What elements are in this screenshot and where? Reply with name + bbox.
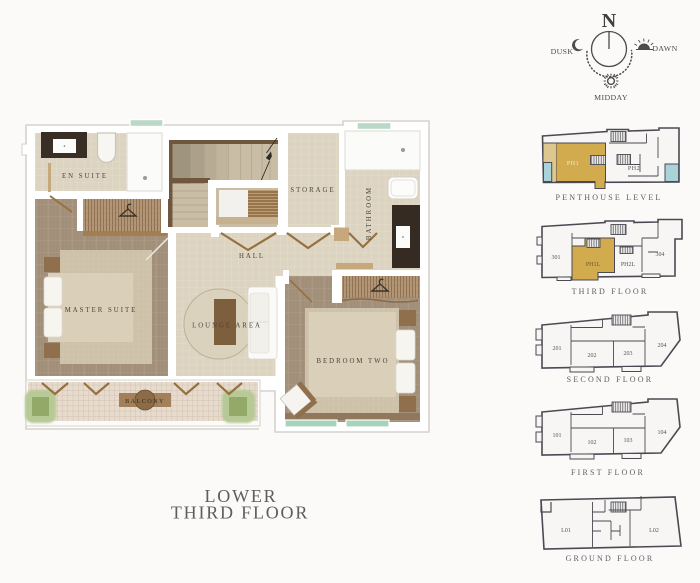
svg-text:L02: L02 [649,528,659,534]
svg-text:MASTER SUITE: MASTER SUITE [65,307,138,314]
svg-text:LOUNGE AREA: LOUNGE AREA [192,323,262,330]
svg-text:203: 203 [624,351,633,357]
svg-text:GROUND FLOOR: GROUND FLOOR [566,554,655,563]
svg-text:104: 104 [658,430,667,436]
svg-text:THIRD FLOOR: THIRD FLOOR [171,503,309,523]
svg-text:101: 101 [553,433,562,439]
svg-text:103: 103 [624,438,633,444]
svg-text:BATHROOM: BATHROOM [366,186,373,240]
svg-text:MIDDAY: MIDDAY [594,93,628,102]
svg-text:STORAGE: STORAGE [290,187,335,194]
svg-text:304: 304 [656,252,665,258]
svg-text:PH2: PH2 [628,166,640,172]
svg-text:FIRST FLOOR: FIRST FLOOR [571,468,645,477]
svg-text:BEDROOM TWO: BEDROOM TWO [316,358,389,365]
svg-text:PH1L: PH1L [586,262,601,268]
svg-text:THIRD FLOOR: THIRD FLOOR [572,287,649,296]
svg-text:HALL: HALL [239,253,265,260]
svg-text:PH1: PH1 [567,161,579,167]
svg-text:202: 202 [588,353,597,359]
svg-text:102: 102 [588,440,597,446]
svg-text:201: 201 [553,346,562,352]
svg-text:204: 204 [658,343,667,349]
svg-text:PH2L: PH2L [621,262,636,268]
svg-text:EN SUITE: EN SUITE [62,173,108,180]
svg-text:N: N [602,10,617,32]
svg-text:DAWN: DAWN [652,44,677,53]
svg-text:PENTHOUSE LEVEL: PENTHOUSE LEVEL [556,193,663,202]
svg-text:SECOND FLOOR: SECOND FLOOR [567,375,654,384]
svg-text:301: 301 [552,255,561,261]
svg-text:DUSK: DUSK [551,47,574,56]
svg-text:BALCONY: BALCONY [125,398,165,405]
svg-text:L01: L01 [561,528,571,534]
